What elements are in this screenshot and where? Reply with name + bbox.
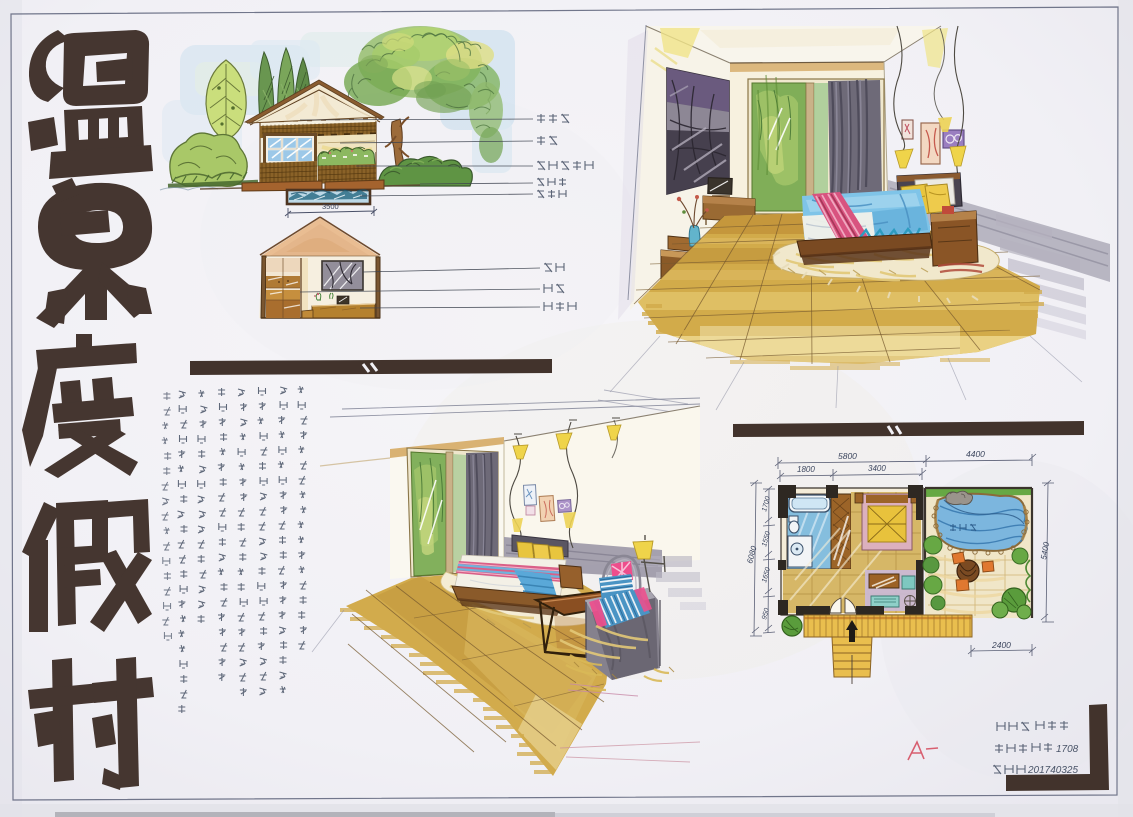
svg-text:2400: 2400	[991, 640, 1011, 650]
svg-text:1708: 1708	[1056, 744, 1079, 755]
svg-text:4400: 4400	[966, 449, 985, 459]
svg-text:5800: 5800	[838, 451, 857, 461]
svg-text:1800: 1800	[797, 465, 815, 474]
svg-text:3500: 3500	[322, 202, 339, 211]
svg-text:3400: 3400	[868, 464, 886, 473]
